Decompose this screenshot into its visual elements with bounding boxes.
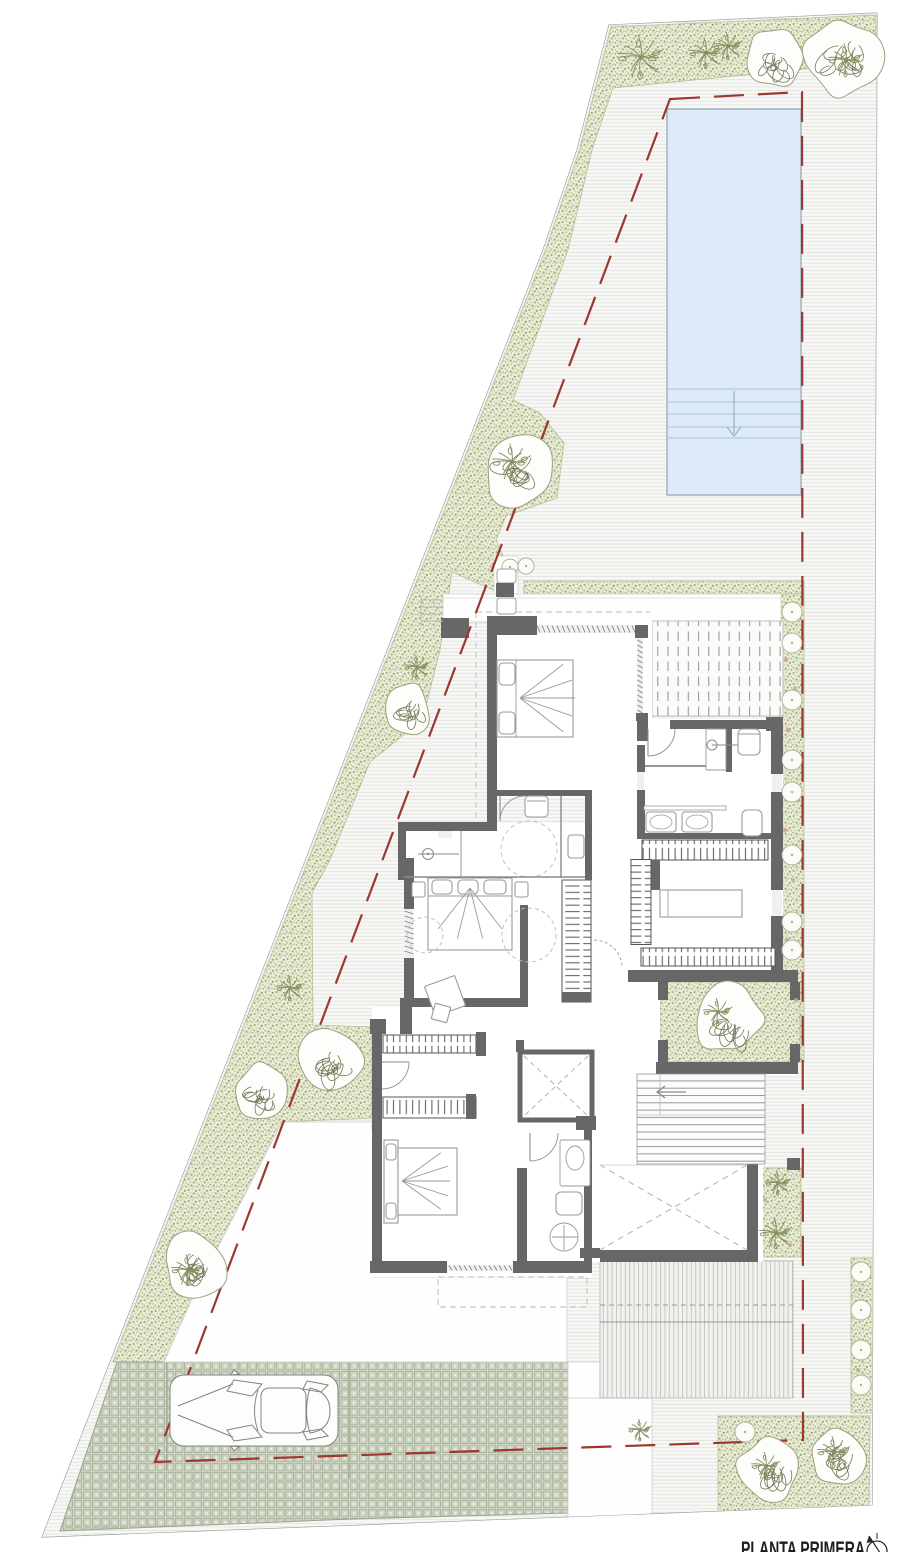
svg-text:PLANTA PRIMERA: PLANTA PRIMERA [741,1538,865,1552]
